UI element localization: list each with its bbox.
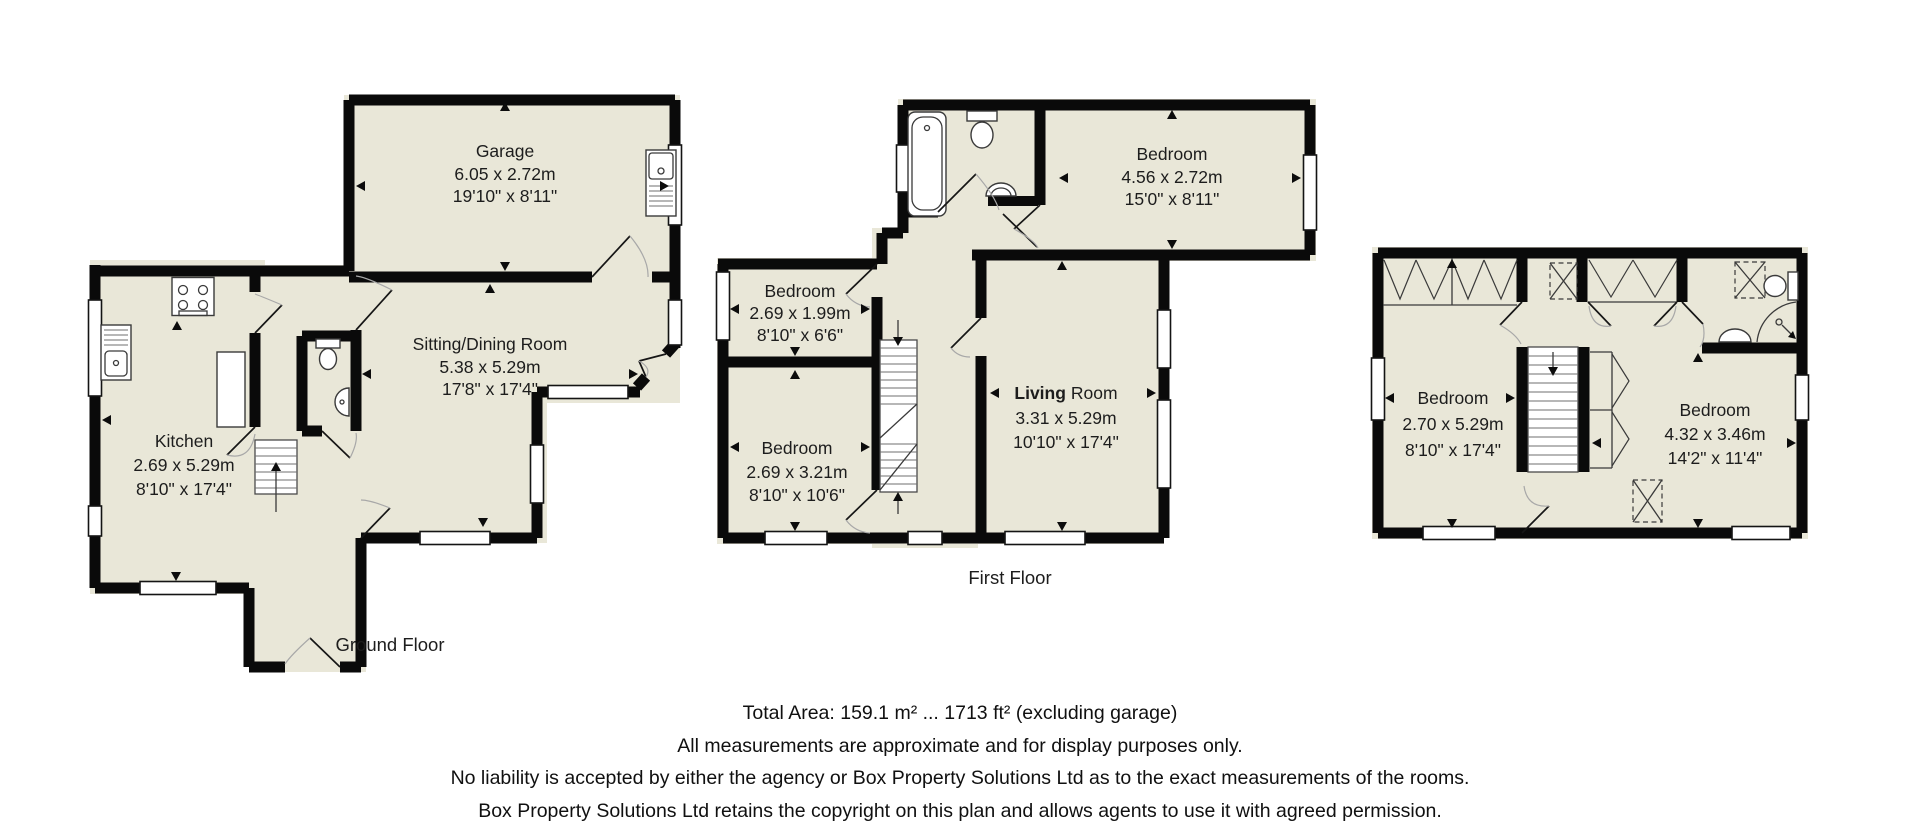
bedroom-left-name: Bedroom [1417,388,1488,408]
first-floor-stairs-icon [880,320,917,514]
second-floor-stairs-icon [1528,347,1578,472]
bedroom-top-name: Bedroom [1136,144,1207,164]
window [89,506,102,536]
bedroom-mid-imperial: 8'10" x 10'6" [749,485,845,505]
sitting-dining-imperial: 17'8" x 17'4" [442,379,538,399]
kitchen-sink-icon [101,325,131,380]
sitting-dining-name: Sitting/Dining Room [413,334,568,354]
bedroom-right-name: Bedroom [1679,400,1750,420]
bedroom-left-metric: 2.70 x 5.29m [1402,414,1503,434]
window [1796,375,1809,420]
window [140,582,216,595]
bedroom-small-metric: 2.69 x 1.99m [749,303,850,323]
window [1005,532,1085,545]
window [1304,155,1317,230]
disclaimer-line: No liability is accepted by either the a… [0,762,1920,795]
bedroom-mid-metric: 2.69 x 3.21m [746,462,847,482]
window [1732,527,1790,540]
window [548,386,628,399]
bedroom-left-imperial: 8'10" x 17'4" [1405,440,1501,460]
bedroom-right-imperial: 14'2" x 11'4" [1668,448,1763,468]
window [908,532,942,545]
living-room-metric: 3.31 x 5.29m [1015,408,1116,428]
kitchen-imperial: 8'10" x 17'4" [136,479,232,499]
kitchen-name: Kitchen [155,431,213,451]
window [669,300,682,345]
ground-floor-plan: Garage 6.05 x 2.72m 19'10" x 8'11" Sitti… [89,95,682,672]
window [717,272,730,340]
living-room-name-bold: Living [1014,383,1066,403]
bath-icon [908,112,946,216]
garage-name: Garage [476,141,534,161]
bedroom-small-imperial: 8'10" x 6'6" [757,325,843,345]
window [1158,400,1171,488]
second-floor-plan: Bedroom 2.70 x 5.29m 8'10" x 17'4" Bedro… [1372,247,1809,540]
sitting-dining-metric: 5.38 x 5.29m [439,357,540,377]
total-area-line: Total Area: 159.1 m² ... 1713 ft² (exclu… [0,697,1920,730]
window [1372,358,1385,420]
sitting-dining-room-lower [349,272,547,543]
ground-floor-label: Ground Floor [336,634,445,655]
disclaimer-line: All measurements are approximate and for… [0,730,1920,763]
bedroom-small-name: Bedroom [764,281,835,301]
bedroom-mid-name: Bedroom [761,438,832,458]
window [1423,527,1495,540]
living-room-name-rest: Room [1071,383,1118,403]
window [765,532,827,545]
window [89,300,102,396]
hob-icon [172,278,214,316]
living-room-imperial: 10'10" x 17'4" [1013,432,1119,452]
bedroom-right-metric: 4.32 x 3.46m [1664,424,1765,444]
window [420,532,490,545]
garage-metric: 6.05 x 2.72m [454,164,555,184]
bedroom-top-imperial: 15'0" x 8'11" [1125,189,1220,209]
window [531,445,544,503]
floorplan-page: Garage 6.05 x 2.72m 19'10" x 8'11" Sitti… [0,0,1920,832]
bedroom-top-metric: 4.56 x 2.72m [1121,167,1222,187]
window [1158,310,1171,368]
first-floor-plan: Bedroom 4.56 x 2.72m 15'0" x 8'11" Bedro… [717,99,1317,588]
kitchen-metric: 2.69 x 5.29m [133,455,234,475]
garage-imperial: 19'10" x 8'11" [453,186,557,206]
first-floor-label: First Floor [968,567,1051,588]
kitchen-counter [217,352,245,427]
copyright-line: Box Property Solutions Ltd retains the c… [0,795,1920,828]
disclaimer-block: Total Area: 159.1 m² ... 1713 ft² (exclu… [0,697,1920,827]
